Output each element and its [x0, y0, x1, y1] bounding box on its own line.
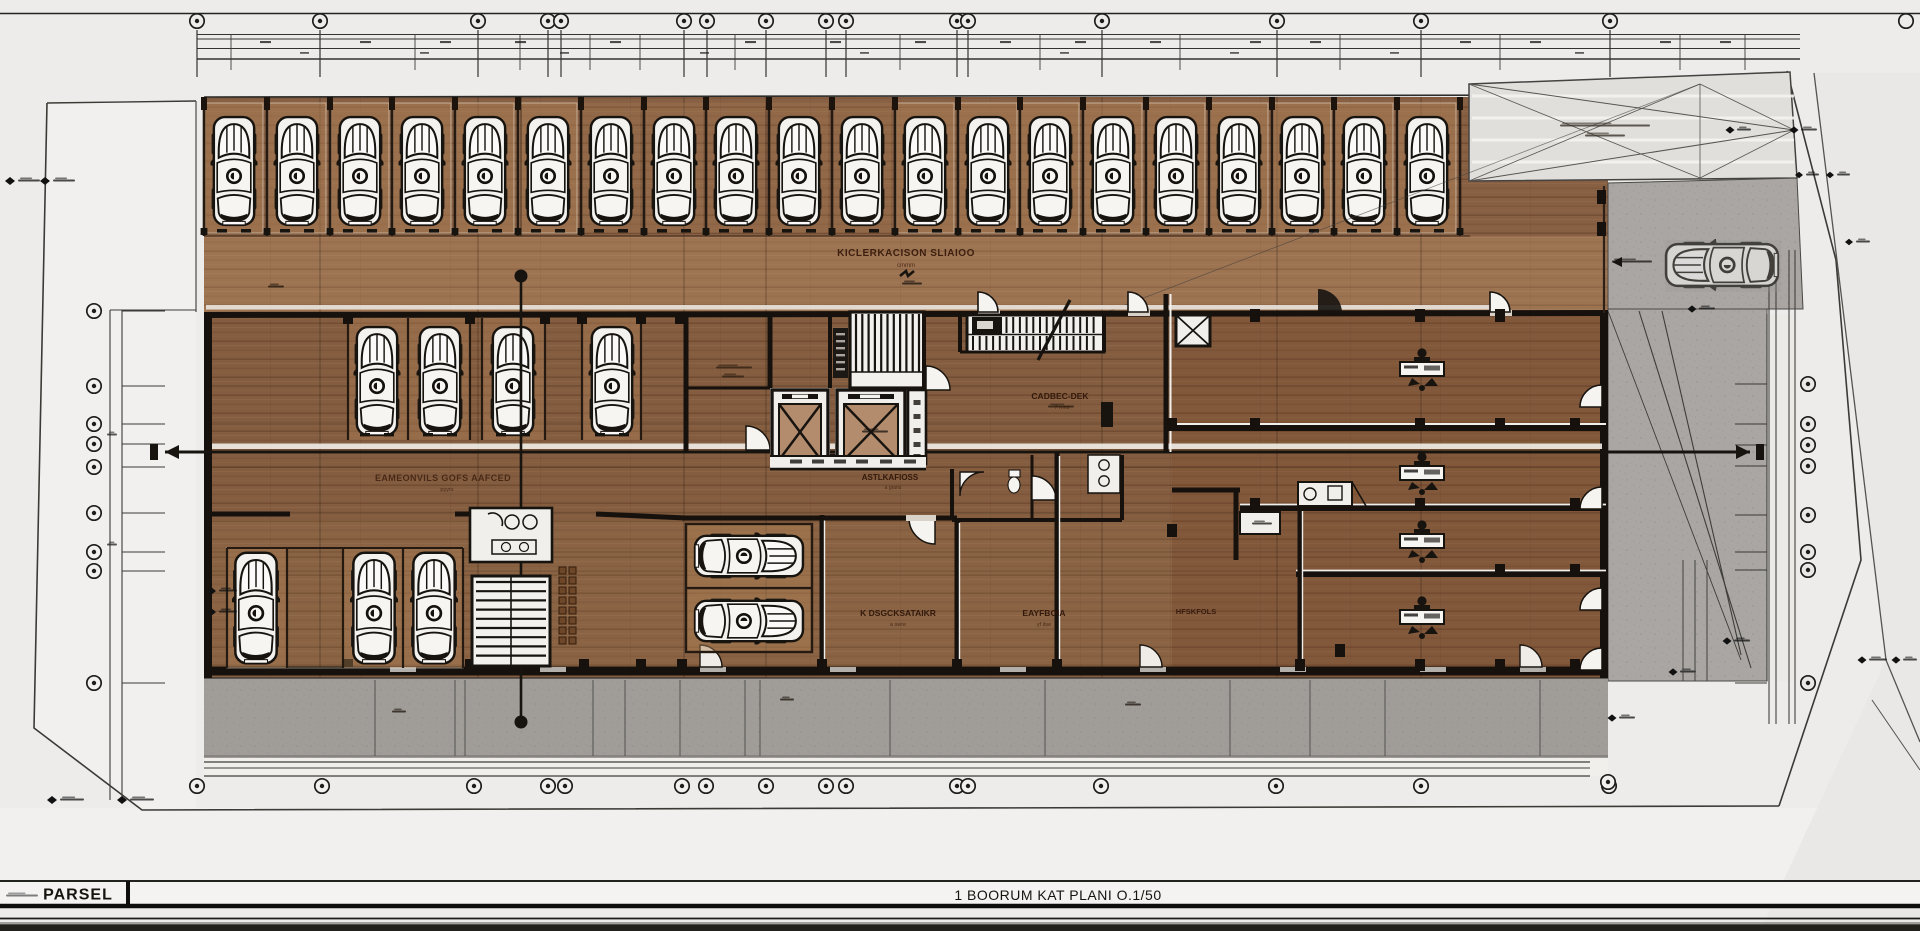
svg-text:yf itse: yf itse [1037, 622, 1051, 628]
svg-text:pyyrs: pyyrs [440, 487, 453, 493]
svg-text:PARSEL: PARSEL [43, 887, 113, 904]
svg-text:7 mns: 7 mns [1055, 405, 1070, 411]
svg-text:EAYFBOIA: EAYFBOIA [1022, 608, 1065, 618]
svg-text:EAMEONVILS GOFS AAFCED: EAMEONVILS GOFS AAFCED [375, 473, 511, 483]
svg-text:cmmm: cmmm [897, 263, 915, 269]
svg-text:K DSGCKSATAIKR: K DSGCKSATAIKR [860, 608, 936, 618]
svg-text:a grans: a grans [885, 485, 902, 491]
svg-text:KICLERKACISON SLIAIOO: KICLERKACISON SLIAIOO [837, 248, 975, 259]
svg-text:HFSKFOLS: HFSKFOLS [1176, 607, 1216, 616]
svg-text:ASTLKAFIOSS: ASTLKAFIOSS [862, 473, 919, 482]
svg-text:a swre: a swre [890, 622, 906, 628]
svg-text:CADBEC-DEK: CADBEC-DEK [1031, 391, 1089, 401]
svg-text:1 BOORUM KAT PLANI O.1/50: 1 BOORUM KAT PLANI O.1/50 [954, 887, 1161, 903]
